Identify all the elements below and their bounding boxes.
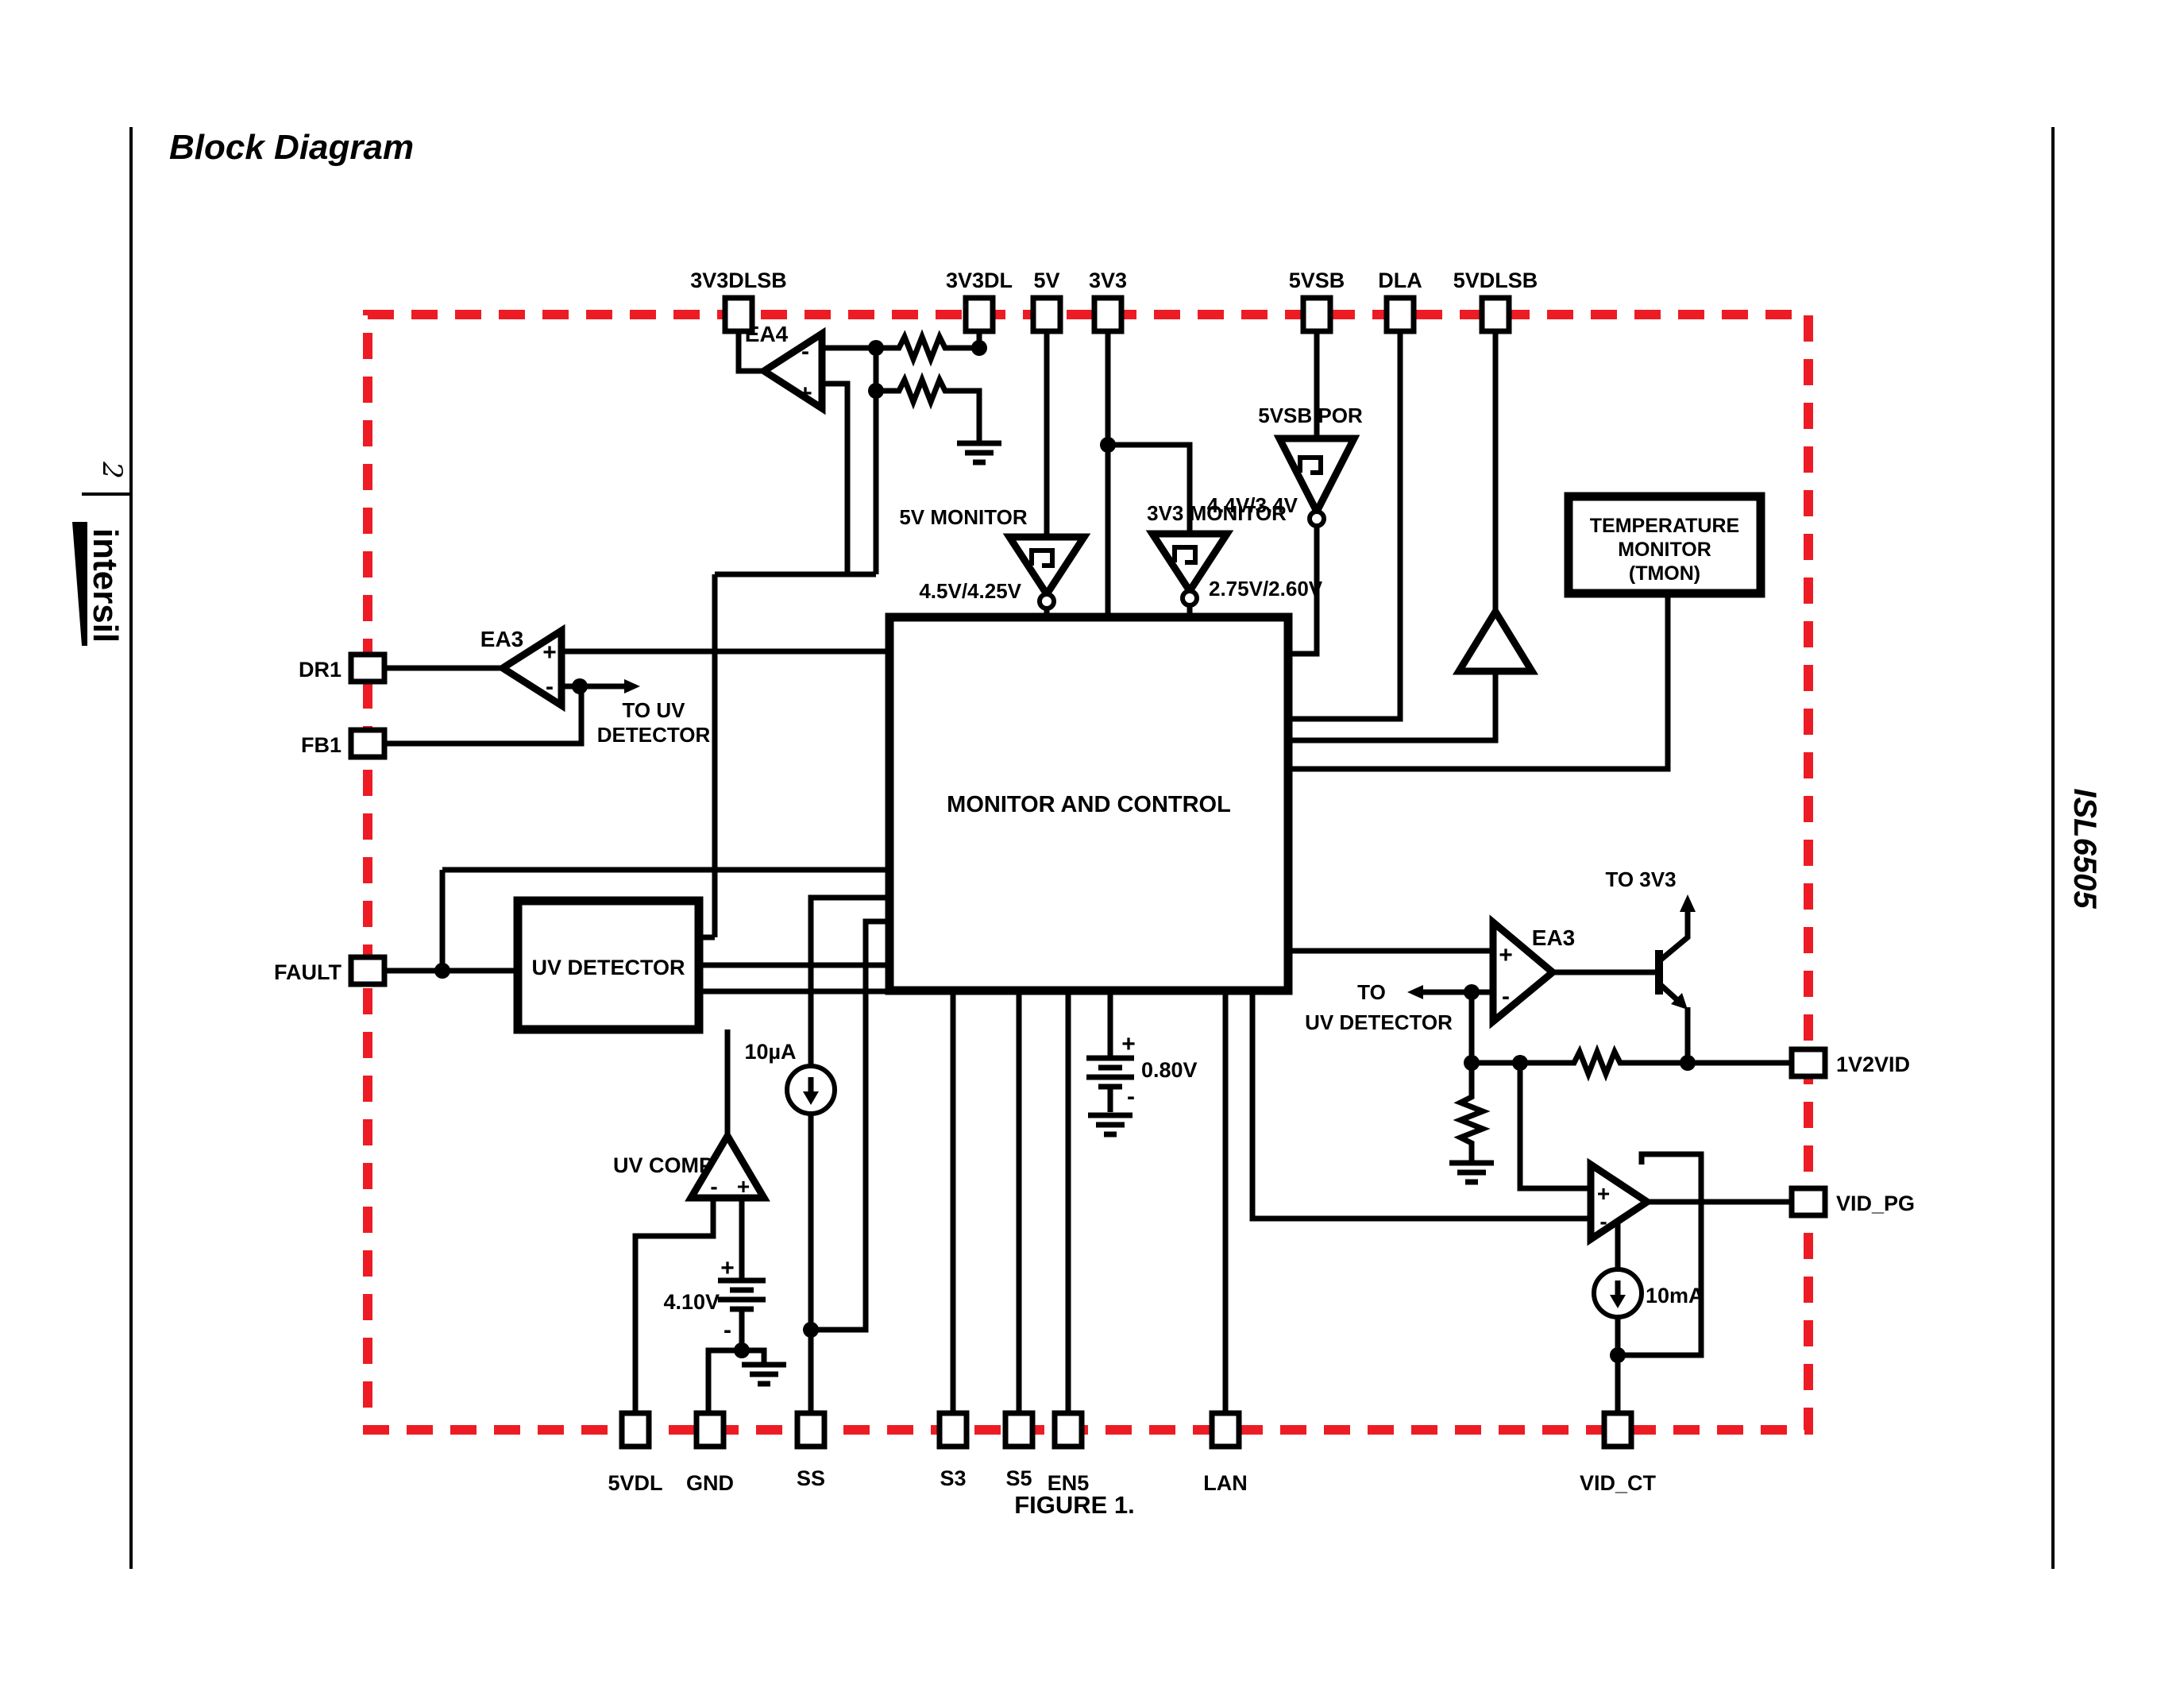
uv-comp-label: UV COMP — [613, 1153, 713, 1177]
brand-logo: intersil — [72, 522, 125, 646]
3v3-monitor-bubble-icon — [1183, 591, 1197, 605]
datasheet-page: Block Diagram 2 intersil ISL6505 FIGURE … — [0, 0, 2184, 1688]
pin-vid-pg — [1792, 1188, 1825, 1215]
pin-5vsb — [1303, 298, 1330, 331]
ea4-plus-sign: + — [798, 380, 812, 407]
pin-s5 — [1005, 1413, 1032, 1447]
to-uv-arrow-left-icon — [624, 679, 640, 693]
vid-pg-minus-sign: - — [1599, 1209, 1607, 1234]
pin-dr1 — [351, 655, 384, 682]
ea3-left-plus-sign: + — [542, 639, 557, 666]
pin-vid-ct — [1604, 1413, 1631, 1447]
vid-divider-resistor — [1461, 1087, 1483, 1153]
to-3v3-arrow-icon — [1680, 894, 1696, 912]
vid-pg-plus-sign: + — [1597, 1181, 1610, 1206]
ea3-right-minus-sign: - — [1502, 983, 1510, 1010]
5vsb-por-bubble-icon — [1310, 512, 1324, 526]
to-uv-left-label-1: TO UV — [623, 698, 686, 722]
pin-5v-label: 5V — [1033, 268, 1059, 292]
pin-s5-label: S5 — [1005, 1466, 1032, 1490]
pin-fb1 — [351, 730, 384, 757]
page-title: Block Diagram — [169, 128, 414, 167]
pin-3v3 — [1094, 298, 1121, 331]
pin-vid-ct-label: VID_CT — [1580, 1471, 1657, 1495]
pin-5vsb-label: 5VSB — [1289, 268, 1345, 292]
components: MONITOR AND CONTROL UV DETECTOR TEMPERAT… — [480, 322, 1761, 1384]
pin-en5-label: EN5 — [1048, 1471, 1090, 1495]
uv-ref-plus-sign: + — [720, 1255, 735, 1281]
pin-fault — [351, 957, 384, 984]
ea4-resistor-bottom — [889, 380, 955, 402]
3v3-monitor-threshold: 2.75V/2.60V — [1209, 577, 1323, 601]
pin-5vdlsb-label: 5VDLSB — [1453, 268, 1538, 292]
pin-5vdl — [622, 1413, 649, 1447]
tmon-label-3: (TMON) — [1629, 562, 1700, 585]
uv-comp-plus-sign: + — [737, 1174, 750, 1199]
brand-logo-swoosh-icon — [72, 522, 87, 646]
vid-ct-current-label: 10mA — [1646, 1284, 1704, 1308]
pin-5vdl-label: 5VDL — [608, 1471, 662, 1495]
pin-en5 — [1055, 1413, 1082, 1447]
vid-ref-minus-sign: - — [1127, 1083, 1135, 1110]
pin-fault-label: FAULT — [274, 960, 341, 984]
pin-gnd-label: GND — [686, 1471, 734, 1495]
pin-s3-label: S3 — [940, 1466, 966, 1490]
pin-3v3dlsb-label: 3V3DLSB — [690, 268, 787, 292]
tmon-label-1: TEMPERATURE — [1590, 515, 1739, 537]
wire-bottom-pins — [953, 991, 1225, 1416]
5vsb-por-threshold: 4.4V/3.4V — [1207, 493, 1298, 517]
ea4-resistor-top — [889, 337, 955, 359]
uv-ref-value: 4.10V — [663, 1290, 720, 1314]
ea3-left-label: EA3 — [480, 627, 523, 651]
pin-lan — [1212, 1413, 1239, 1447]
5v-monitor-threshold: 4.5V/4.25V — [919, 579, 1021, 603]
pin-3v3dlsb — [725, 298, 752, 331]
ea4-ground-icon — [957, 443, 1001, 462]
ea3-right-plus-sign: + — [1499, 942, 1513, 968]
pin-1v2vid — [1792, 1049, 1825, 1076]
wire-emitter — [1659, 983, 1688, 1063]
pin-ss-label: SS — [797, 1466, 825, 1490]
5vsb-por-label: 5VSB POR — [1258, 404, 1363, 427]
uv-ref-ground-icon — [742, 1365, 786, 1384]
wire-ea4-feedback-rail — [699, 384, 876, 937]
pin-vid-pg-label: VID_PG — [1836, 1192, 1915, 1215]
uv-comp-minus-sign: - — [710, 1174, 717, 1199]
pin-3v3-label: 3V3 — [1089, 268, 1127, 292]
wire-collector — [1659, 906, 1688, 961]
pin-5v — [1033, 298, 1060, 331]
ea4-minus-sign: - — [801, 338, 809, 365]
ea3-right-label: EA3 — [1532, 925, 1575, 950]
vid-ref-battery-icon — [1086, 1058, 1134, 1087]
wire-dla — [1288, 329, 1400, 719]
to-uv-right-label-1: TO — [1357, 980, 1386, 1004]
vid-feedback-resistor — [1564, 1052, 1630, 1074]
ss-current-source — [787, 1066, 835, 1114]
pin-lan-label: LAN — [1203, 1471, 1248, 1495]
pin-dla — [1387, 298, 1414, 331]
uv-detector-label: UV DETECTOR — [531, 956, 685, 979]
ss-current-label: 10µA — [744, 1040, 796, 1064]
vid-ref-plus-sign: + — [1121, 1031, 1136, 1057]
brand-logo-text: intersil — [86, 528, 125, 643]
5v-monitor-label: 5V MONITOR — [899, 505, 1028, 529]
vid-ref-ground-icon — [1088, 1115, 1133, 1134]
uv-ref-battery-icon — [718, 1280, 766, 1309]
vid-ct-current-source — [1594, 1269, 1642, 1317]
to-uv-left-label-2: DETECTOR — [597, 723, 711, 747]
5v-monitor-bubble-icon — [1040, 594, 1054, 608]
tmon-label-2: MONITOR — [1618, 539, 1711, 561]
vid-ref-value: 0.80V — [1141, 1058, 1198, 1082]
to-3v3-label: TO 3V3 — [1605, 867, 1676, 891]
pin-s3 — [940, 1413, 967, 1447]
wire-ea3l-minus-fb1 — [382, 686, 624, 744]
wire-vidpg-plus — [1520, 1063, 1591, 1188]
wire-vidpg-loop — [1618, 1154, 1701, 1355]
pin-dr1-label: DR1 — [299, 658, 341, 682]
to-uv-arrow-right-icon — [1407, 985, 1423, 999]
figure-caption: FIGURE 1. — [1014, 1491, 1135, 1519]
vid-divider-ground-icon — [1449, 1163, 1494, 1182]
pin-1v2vid-label: 1V2VID — [1836, 1053, 1910, 1076]
to-uv-right-label-2: UV DETECTOR — [1305, 1010, 1453, 1034]
pin-ss — [797, 1413, 824, 1447]
5vdlsb-buffer — [1459, 612, 1532, 671]
pin-3v3dl — [966, 298, 993, 331]
pin-fb1-label: FB1 — [301, 733, 341, 757]
uv-ref-minus-sign: - — [723, 1317, 731, 1343]
ea3-left-minus-sign: - — [546, 674, 554, 700]
pin-gnd — [696, 1413, 723, 1447]
part-number: ISL6505 — [2067, 788, 2102, 909]
monitor-control-label: MONITOR AND CONTROL — [947, 792, 1231, 817]
pin-3v3dl-label: 3V3DL — [946, 268, 1013, 292]
pin-5vdlsb — [1482, 298, 1509, 331]
page-number: 2 — [96, 461, 128, 479]
pin-dla-label: DLA — [1378, 268, 1422, 292]
wire-ss-current — [811, 898, 889, 1416]
